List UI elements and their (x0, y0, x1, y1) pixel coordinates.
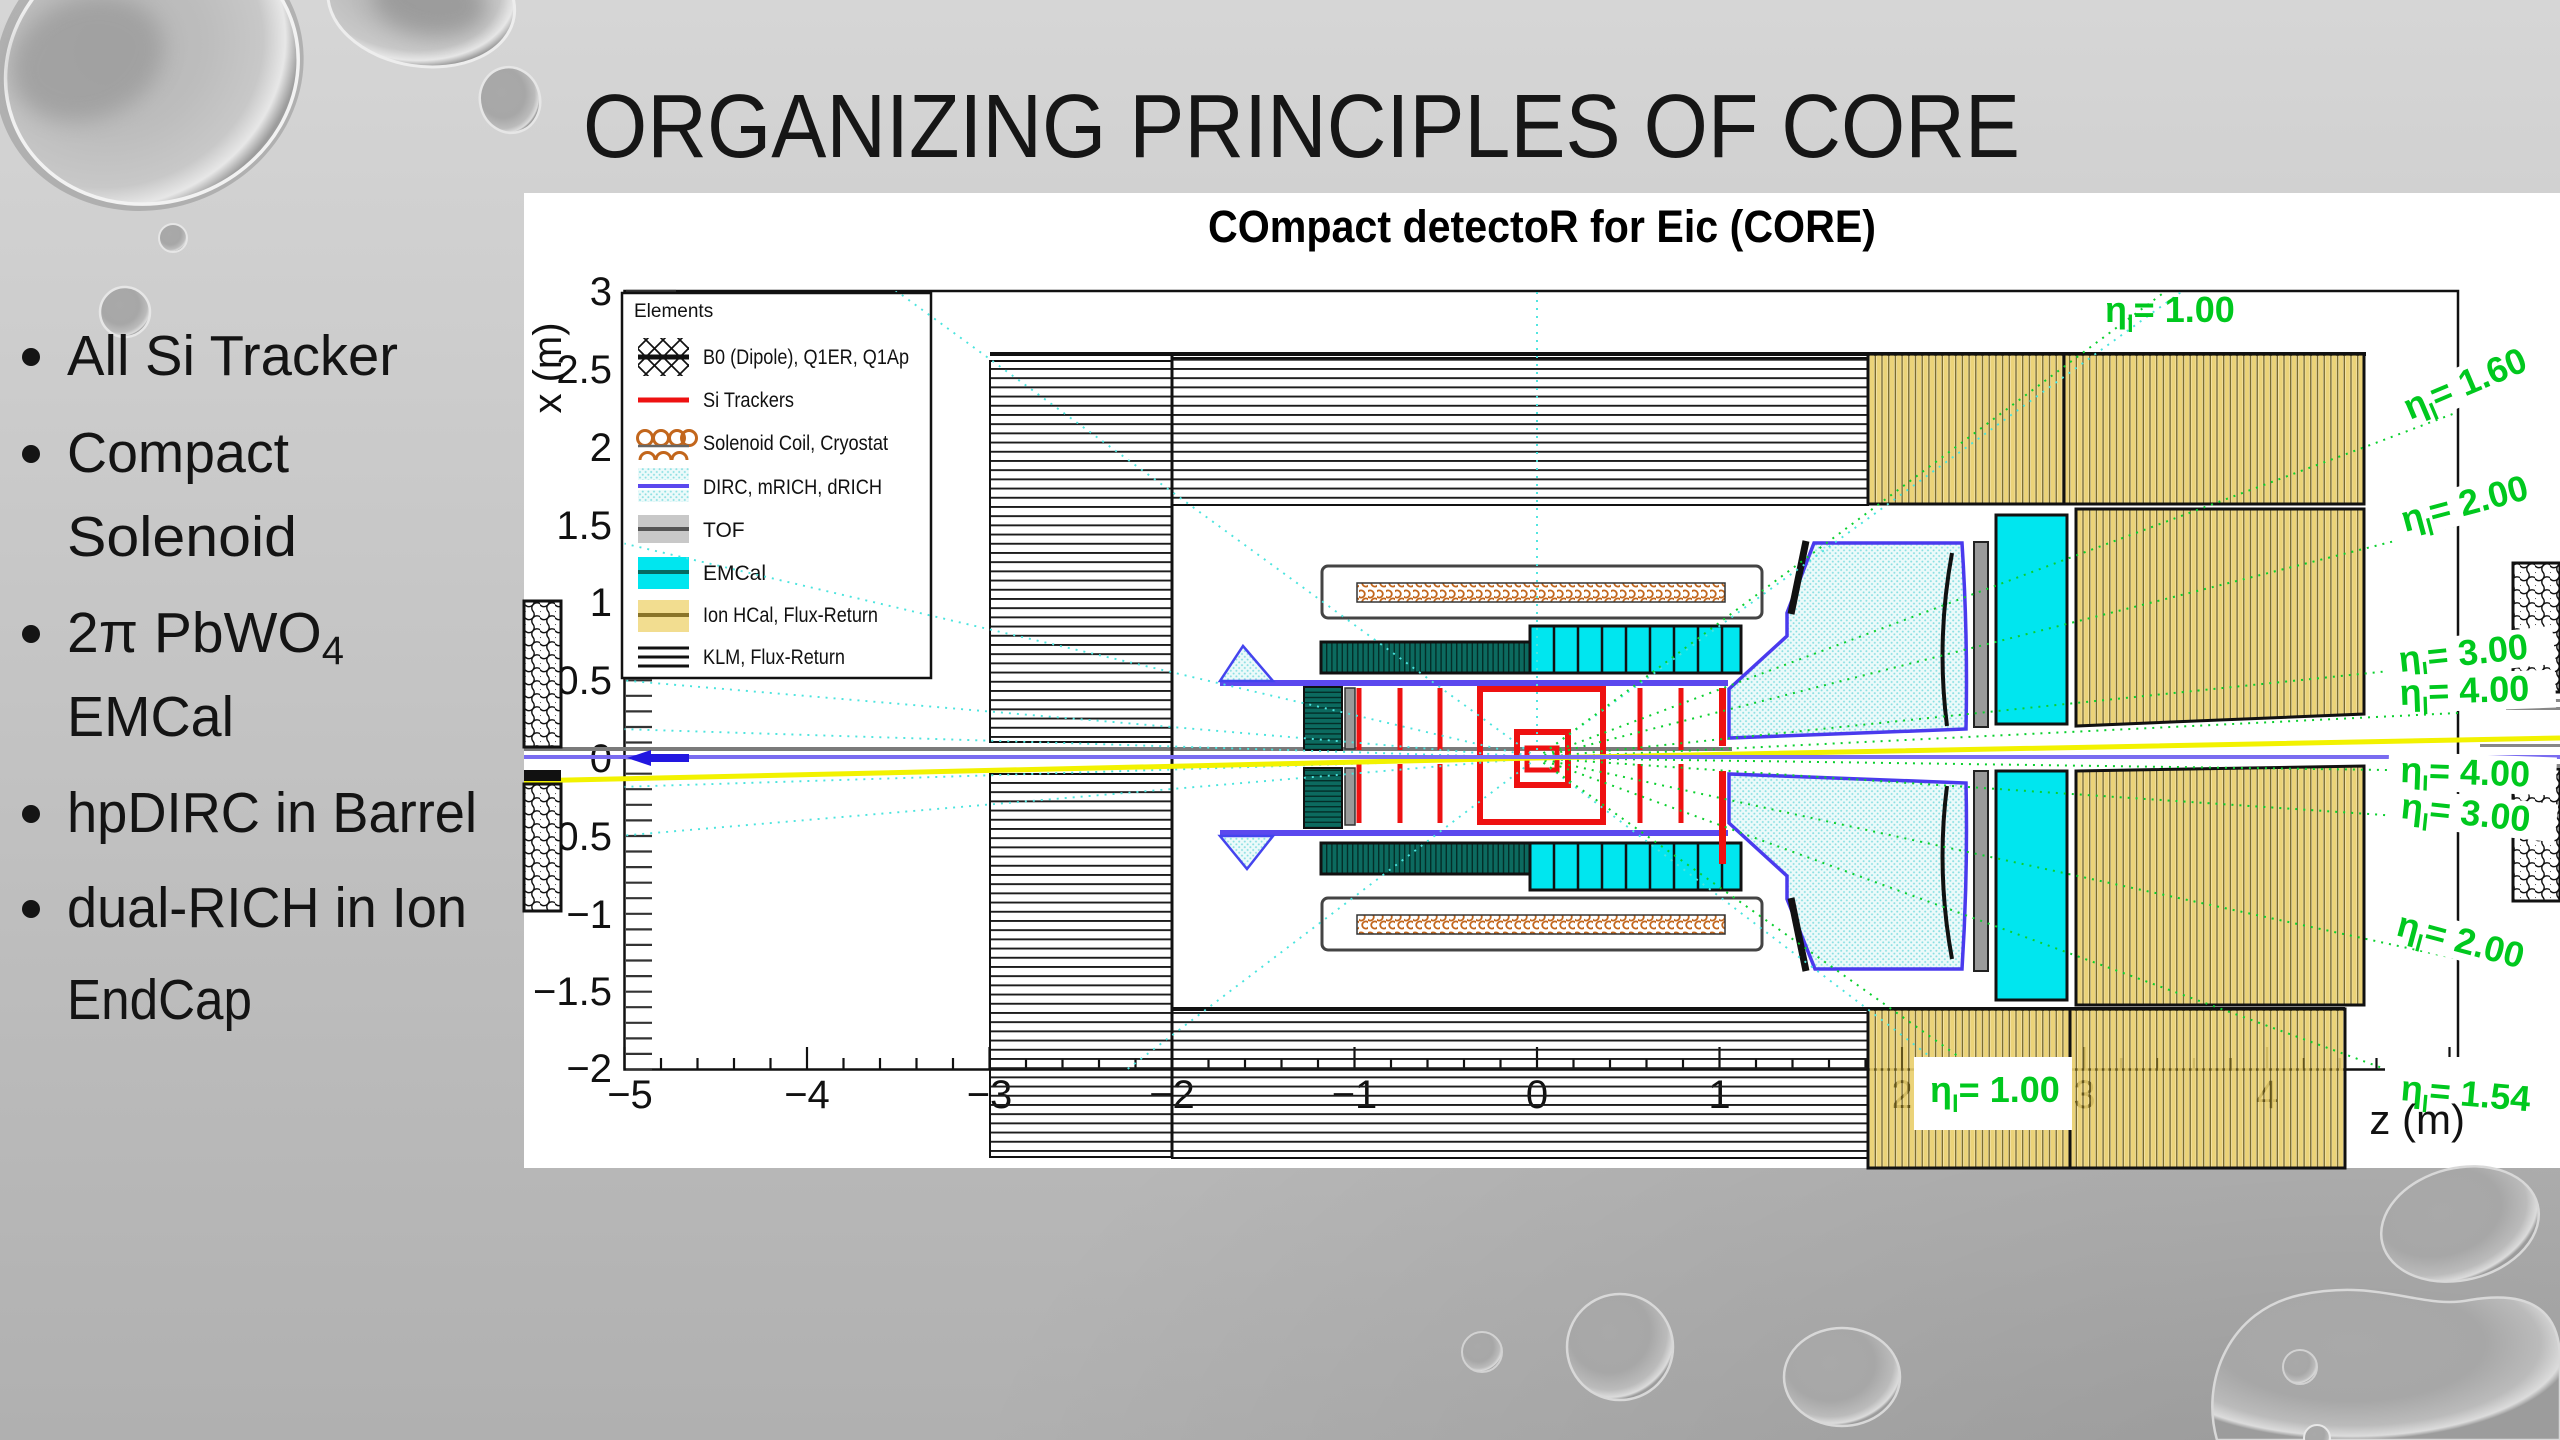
svg-text:Elements: Elements (634, 301, 713, 322)
svg-text:−1: −1 (566, 893, 612, 937)
svg-text:x (m): x (m) (526, 322, 570, 413)
svg-text:z (m): z (m) (2369, 1096, 2465, 1143)
svg-text:1.5: 1.5 (556, 504, 612, 548)
svg-text:−5: −5 (607, 1073, 653, 1117)
svg-text:3: 3 (590, 270, 612, 314)
svg-text:−2: −2 (566, 1047, 612, 1091)
svg-text:Ion HCal, Flux-Return: Ion HCal, Flux-Return (703, 604, 878, 627)
svg-text:−1.5: −1.5 (533, 970, 612, 1014)
svg-text:DIRC, mRICH, dRICH: DIRC, mRICH, dRICH (703, 476, 882, 499)
svg-text:2π PbWO4: 2π PbWO4 (67, 601, 344, 673)
svg-text:ORGANIZING PRINCIPLES OF CORE: ORGANIZING PRINCIPLES OF CORE (583, 77, 2020, 177)
svg-text:COmpact detectoR for Eic (CORE: COmpact detectoR for Eic (CORE) (1208, 201, 1876, 252)
svg-text:hpDIRC in Barrel: hpDIRC in Barrel (67, 781, 477, 845)
svg-text:Si Trackers: Si Trackers (703, 389, 794, 412)
svg-text:Solenoid: Solenoid (67, 505, 297, 569)
svg-text:TOF: TOF (703, 519, 745, 542)
svg-text:EMCal: EMCal (67, 685, 234, 749)
svg-text:Solenoid Coil, Cryostat: Solenoid Coil, Cryostat (703, 432, 888, 455)
svg-text:2: 2 (590, 426, 612, 470)
svg-text:−4: −4 (784, 1073, 830, 1117)
svg-text:dual-RICH in Ion: dual-RICH in Ion (67, 876, 467, 940)
svg-text:B0 (Dipole), Q1ER, Q1Ap: B0 (Dipole), Q1ER, Q1Ap (703, 346, 909, 369)
svg-text:All Si Tracker: All Si Tracker (67, 324, 398, 388)
svg-text:Compact: Compact (67, 421, 289, 485)
svg-text:1: 1 (590, 581, 612, 625)
svg-text:EMCal: EMCal (703, 562, 766, 585)
svg-text:0.5: 0.5 (556, 659, 612, 703)
svg-text:EndCap: EndCap (67, 968, 252, 1032)
svg-text:KLM, Flux-Return: KLM, Flux-Return (703, 646, 845, 669)
